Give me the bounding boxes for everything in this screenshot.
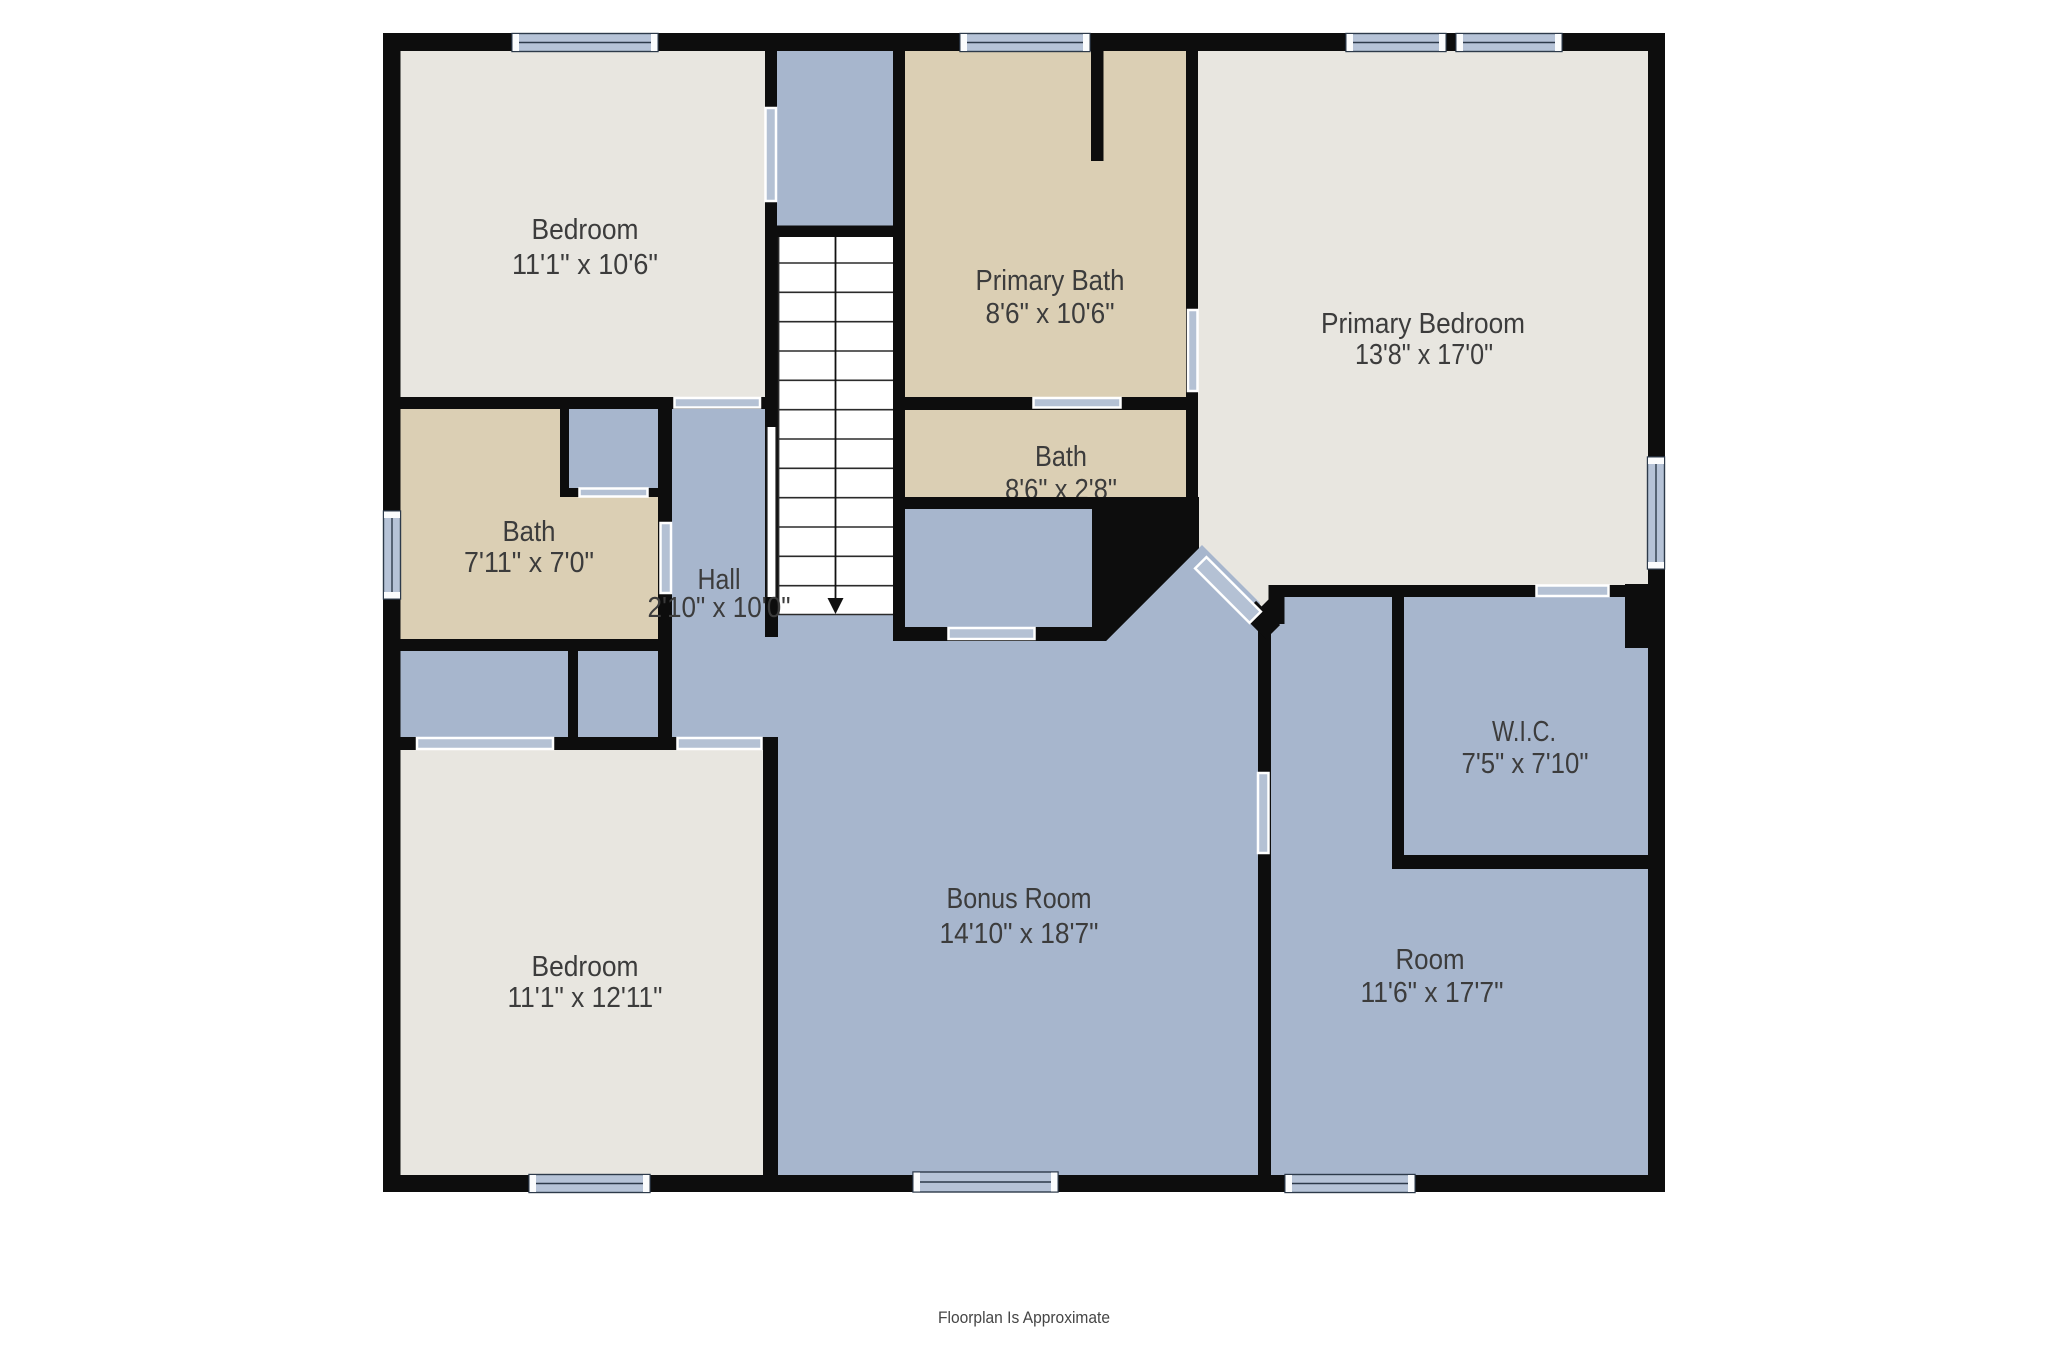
svg-text:13'8" x 17'0": 13'8" x 17'0" [1355, 339, 1493, 371]
svg-text:Primary Bath: Primary Bath [976, 265, 1125, 297]
svg-text:Room: Room [1396, 944, 1465, 976]
svg-text:Bedroom: Bedroom [532, 951, 639, 983]
svg-text:W.I.C.: W.I.C. [1492, 716, 1556, 748]
svg-text:Bath: Bath [503, 516, 556, 548]
svg-text:11'1" x 10'6": 11'1" x 10'6" [512, 249, 658, 281]
svg-text:7'5" x 7'10": 7'5" x 7'10" [1462, 748, 1589, 780]
svg-text:8'6" x 10'6": 8'6" x 10'6" [986, 298, 1115, 330]
svg-text:2'10" x 10'0": 2'10" x 10'0" [648, 592, 791, 624]
svg-text:11'6" x 17'7": 11'6" x 17'7" [1361, 977, 1504, 1009]
svg-text:14'10" x 18'7": 14'10" x 18'7" [940, 918, 1099, 950]
svg-text:Primary Bedroom: Primary Bedroom [1321, 308, 1525, 340]
svg-text:11'1" x 12'11": 11'1" x 12'11" [508, 982, 663, 1014]
svg-text:Bath: Bath [1035, 441, 1087, 473]
svg-text:Floorplan Is Approximate: Floorplan Is Approximate [938, 1309, 1110, 1327]
svg-text:Bedroom: Bedroom [532, 214, 639, 246]
svg-text:7'11" x 7'0": 7'11" x 7'0" [464, 547, 594, 579]
svg-text:Bonus Room: Bonus Room [947, 883, 1092, 915]
